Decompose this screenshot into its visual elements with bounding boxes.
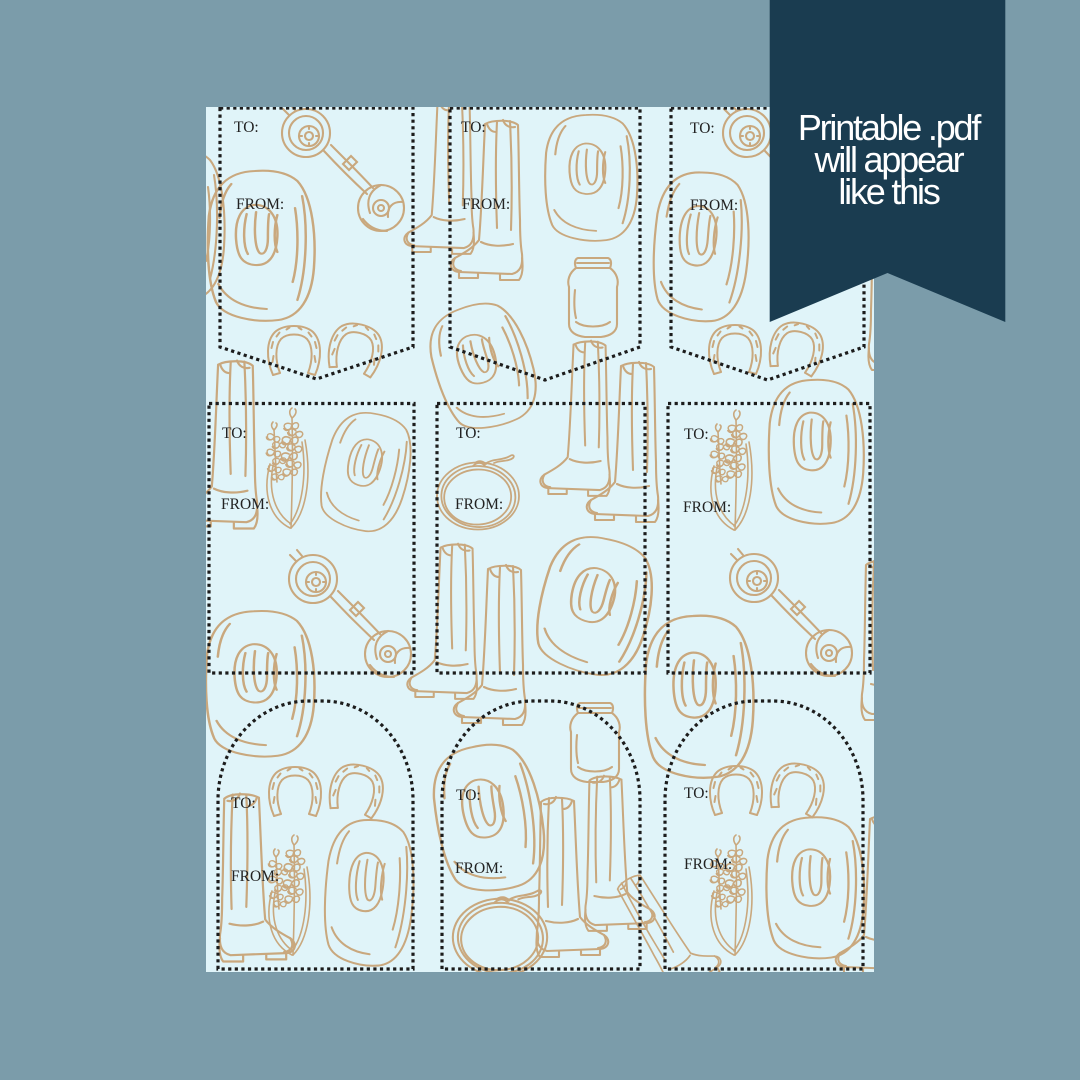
svg-text:TO:: TO: (461, 119, 486, 136)
svg-text:FROM:: FROM: (690, 197, 738, 214)
svg-text:TO:: TO: (690, 120, 715, 137)
svg-text:FROM:: FROM: (462, 196, 510, 213)
svg-text:TO:: TO: (234, 119, 259, 136)
svg-text:FROM:: FROM: (221, 496, 269, 513)
svg-text:FROM:: FROM: (455, 496, 503, 513)
svg-text:TO:: TO: (231, 795, 256, 812)
svg-text:TO:: TO: (456, 787, 481, 804)
svg-text:TO:: TO: (684, 426, 709, 443)
svg-text:FROM:: FROM: (683, 499, 731, 516)
svg-text:TO:: TO: (684, 785, 709, 802)
svg-text:TO:: TO: (456, 425, 481, 442)
svg-text:FROM:: FROM: (684, 856, 732, 873)
svg-text:TO:: TO: (222, 425, 247, 442)
svg-text:FROM:: FROM: (455, 860, 503, 877)
svg-text:like this: like this (838, 171, 939, 212)
svg-text:FROM:: FROM: (236, 196, 284, 213)
svg-text:FROM:: FROM: (231, 868, 279, 885)
